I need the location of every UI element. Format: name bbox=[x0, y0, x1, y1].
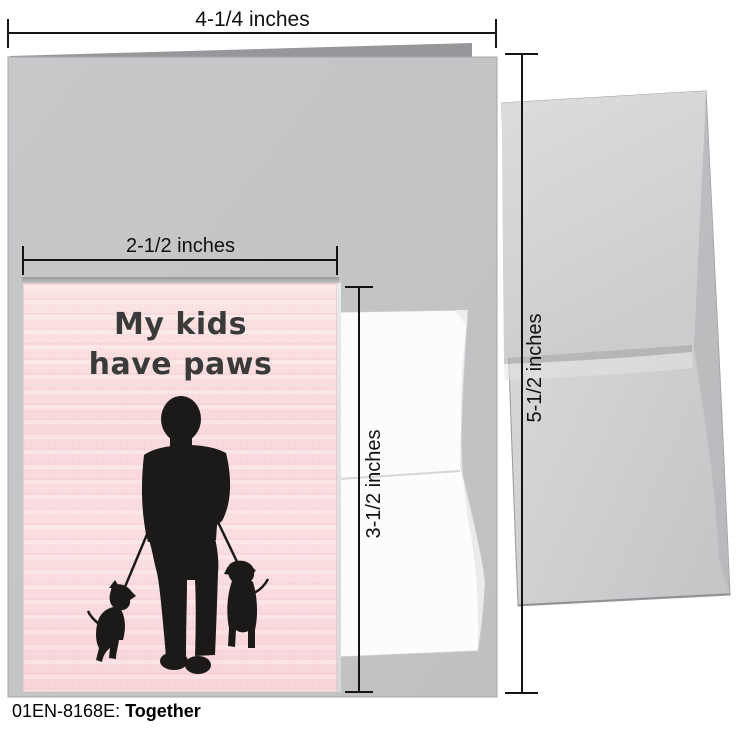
dimension-tick bbox=[505, 53, 538, 55]
product-caption: 01EN-8168E: Together bbox=[12, 701, 201, 722]
small-dog-silhouette bbox=[88, 580, 136, 662]
dimension-label-folded-height: 3-1/2 inches bbox=[363, 419, 385, 549]
envelope-small bbox=[338, 310, 485, 657]
dimension-line-folded-width bbox=[23, 259, 338, 261]
card-thumbnail: My kids have paws bbox=[20, 277, 341, 692]
dimension-line-folded-height bbox=[358, 287, 360, 692]
person-walking-dogs-illustration bbox=[20, 277, 341, 692]
dimension-label-folded-width: 2-1/2 inches bbox=[23, 235, 338, 258]
dimension-label-envelope-height: 5-1/2 inches bbox=[524, 303, 546, 433]
product-size-diagram: My kids have paws bbox=[0, 0, 738, 738]
dimension-line-open-width bbox=[8, 32, 497, 34]
large-dog-silhouette bbox=[224, 561, 268, 648]
dimension-tick bbox=[345, 691, 373, 693]
dimension-tick bbox=[505, 692, 538, 694]
person-silhouette bbox=[142, 396, 230, 674]
dimension-label-open-width: 4-1/4 inches bbox=[8, 8, 497, 32]
dimension-tick bbox=[345, 286, 373, 288]
product-name: Together bbox=[125, 701, 201, 721]
product-code: 01EN-8168E: bbox=[12, 701, 120, 721]
